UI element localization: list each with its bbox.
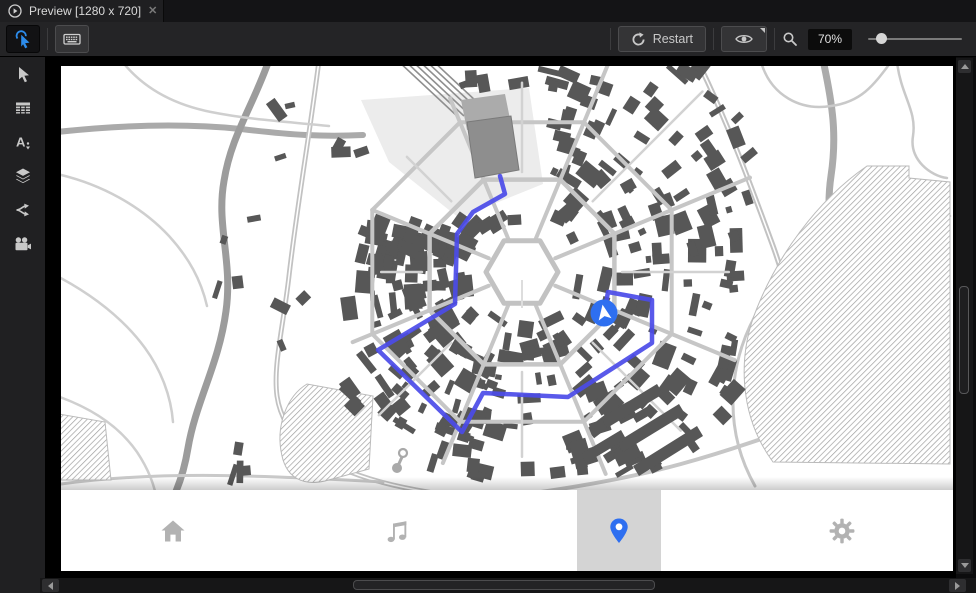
dropdown-corner-icon [760, 28, 765, 33]
tool-layers[interactable] [0, 159, 45, 193]
scroll-down-button[interactable] [958, 559, 971, 572]
keyboard-icon [62, 29, 82, 49]
navbar-item-settings[interactable] [730, 490, 953, 571]
horizontal-scrollbar[interactable] [40, 578, 976, 593]
preview-tab[interactable]: Preview [1280 x 720] ✕ [0, 0, 164, 22]
current-location-marker [591, 300, 618, 327]
tab-title: Preview [1280 x 720] [29, 4, 141, 18]
tap-cursor-icon [13, 29, 33, 49]
navbar-item-location[interactable] [507, 490, 730, 571]
vertical-scroll-thumb[interactable] [959, 286, 969, 394]
close-icon[interactable]: ✕ [148, 6, 157, 17]
scroll-up-button[interactable] [958, 60, 971, 73]
restart-button[interactable]: Restart [618, 26, 706, 52]
location-pin-icon [605, 516, 633, 546]
tool-text-style[interactable]: A [0, 125, 45, 159]
map-preview[interactable] [61, 66, 953, 571]
triangle-right-icon [955, 582, 960, 590]
play-circle-icon [8, 4, 22, 18]
navbar-item-home[interactable] [61, 490, 284, 571]
left-tool-strip: A [0, 57, 45, 593]
qt-preview-window: Preview [1280 x 720] ✕ [0, 0, 976, 593]
toolbar-separator [610, 28, 611, 50]
music-note-icon [381, 516, 411, 546]
gear-icon [827, 516, 857, 546]
triangle-down-icon [961, 563, 969, 568]
zoom-level-value[interactable]: 70% [808, 29, 852, 50]
tool-connections[interactable] [0, 193, 45, 227]
toolbar: Restart 70% [0, 22, 976, 57]
triangle-left-icon [48, 582, 53, 590]
navbar-shadow [61, 477, 953, 490]
table-icon [14, 99, 32, 117]
magnifier-icon [782, 31, 798, 47]
zoom-slider[interactable] [868, 29, 962, 49]
tool-select-arrow[interactable] [0, 57, 45, 91]
keyboard-tool-button[interactable] [55, 25, 89, 53]
tap-tool-button[interactable] [6, 25, 40, 53]
toolbar-separator [47, 28, 48, 50]
select-arrow-icon [14, 65, 32, 83]
tool-camera[interactable] [0, 227, 45, 261]
camera-icon [13, 235, 32, 253]
svg-text:A: A [16, 135, 26, 150]
tab-bar: Preview [1280 x 720] ✕ [0, 0, 976, 22]
visibility-button[interactable] [721, 26, 767, 52]
tool-table[interactable] [0, 91, 45, 125]
zoom-slider-handle[interactable] [876, 33, 887, 44]
preview-stage [45, 57, 956, 578]
vertical-scrollbar[interactable] [956, 58, 973, 574]
toolbar-separator [713, 28, 714, 50]
connections-icon [14, 201, 32, 219]
navbar-item-music[interactable] [284, 490, 507, 571]
home-icon [158, 517, 188, 545]
horizontal-scroll-thumb[interactable] [353, 580, 655, 590]
text-style-icon: A [14, 133, 32, 151]
toolbar-separator [774, 28, 775, 50]
triangle-up-icon [961, 64, 969, 69]
scroll-left-button[interactable] [42, 579, 59, 592]
eye-icon [734, 32, 754, 46]
restart-icon [631, 32, 646, 47]
scroll-right-button[interactable] [949, 579, 966, 592]
app-bottom-navbar [61, 490, 953, 571]
layers-icon [14, 167, 32, 185]
restart-label: Restart [653, 32, 693, 46]
